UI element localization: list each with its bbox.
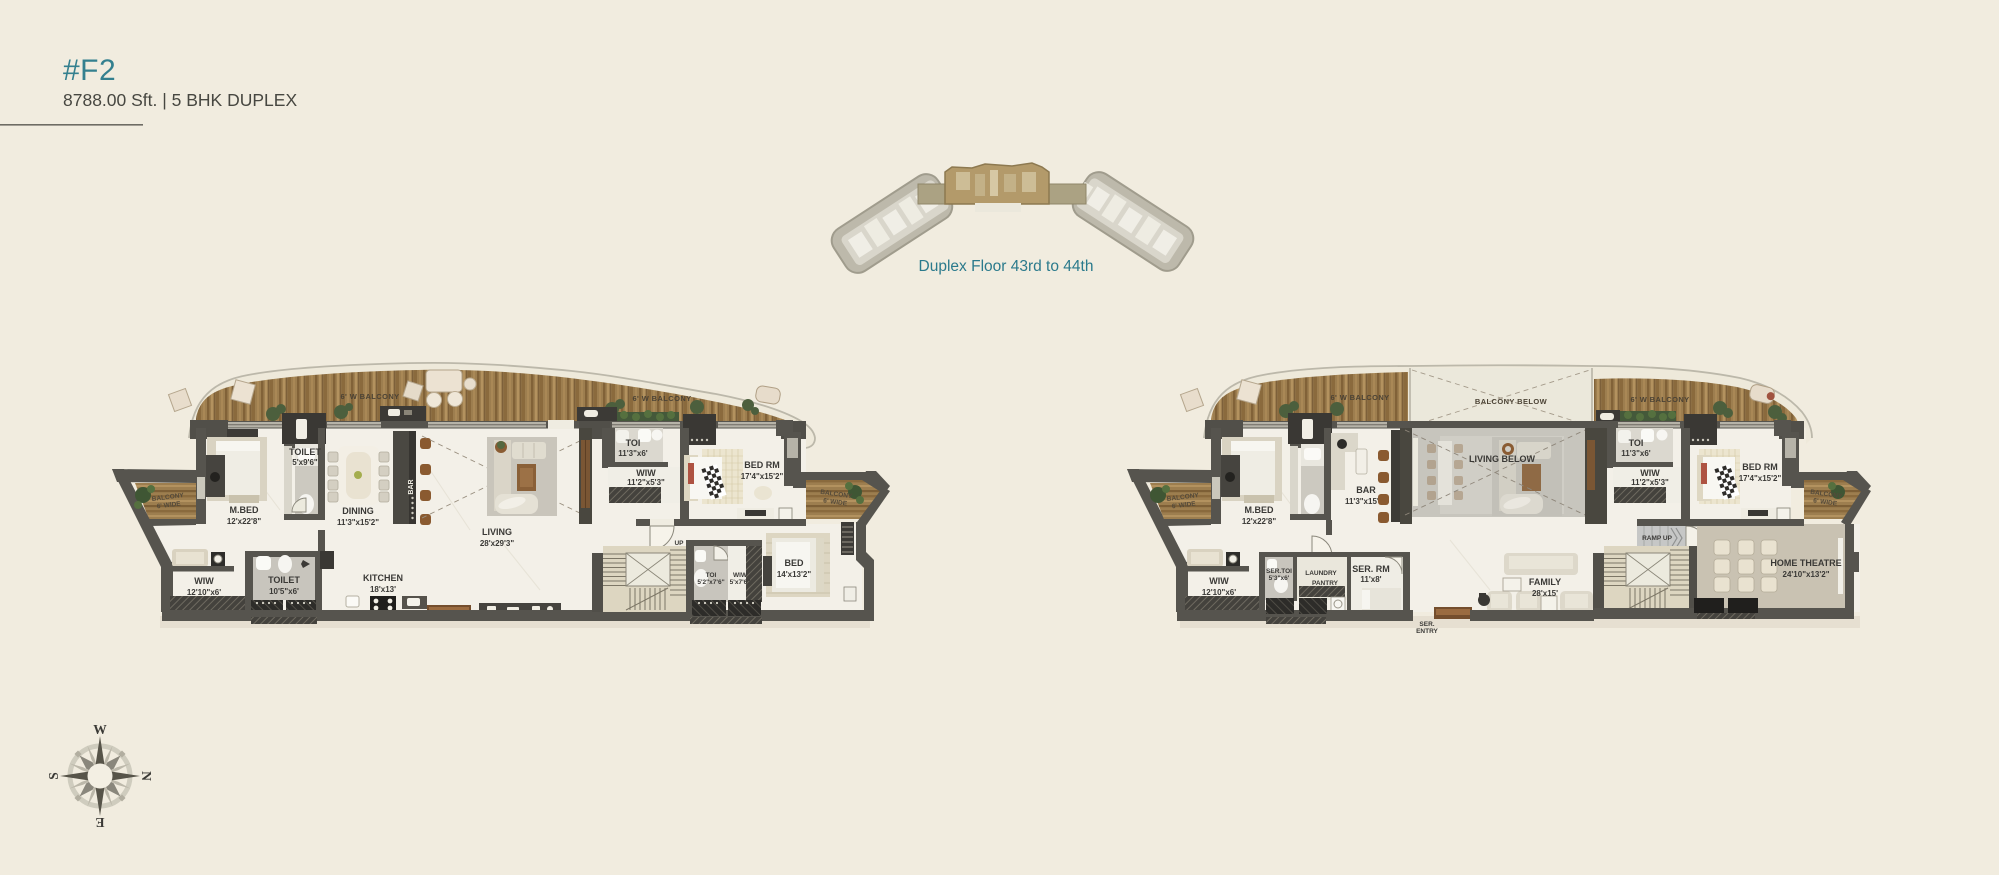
svg-text:6' W BALCONY: 6' W BALCONY	[1630, 395, 1689, 404]
svg-text:WIW: WIW	[1640, 468, 1660, 478]
svg-text:LIVING: LIVING	[482, 527, 512, 537]
svg-text:TOI: TOI	[626, 438, 641, 448]
svg-text:TOILET: TOILET	[268, 575, 300, 585]
svg-text:11'2"x5'3": 11'2"x5'3"	[627, 478, 665, 487]
svg-text:11'3"x15'2": 11'3"x15'2"	[337, 518, 379, 527]
svg-text:BED RM: BED RM	[1742, 462, 1778, 472]
svg-text:6' W BALCONY: 6' W BALCONY	[340, 392, 399, 401]
svg-text:LIVING BELOW: LIVING BELOW	[1469, 454, 1536, 464]
svg-text:WIW: WIW	[733, 572, 748, 579]
svg-text:PANTRY: PANTRY	[1312, 580, 1339, 587]
svg-text:14'x13'2": 14'x13'2"	[777, 570, 812, 579]
svg-text:TOI: TOI	[1629, 438, 1644, 448]
svg-text:TOILET: TOILET	[289, 447, 321, 457]
svg-text:11'x8': 11'x8'	[1360, 575, 1381, 584]
svg-text:17'4"x15'2": 17'4"x15'2"	[741, 472, 784, 481]
svg-text:ENTRY: ENTRY	[1416, 628, 1438, 635]
svg-text:#F2: #F2	[63, 54, 116, 87]
svg-text:6' W BALCONY: 6' W BALCONY	[1330, 393, 1389, 402]
svg-text:TOI: TOI	[706, 572, 717, 579]
svg-text:M.BED: M.BED	[230, 505, 260, 515]
svg-text:28'x29'3": 28'x29'3"	[480, 539, 515, 548]
svg-text:11'2"x5'3": 11'2"x5'3"	[1631, 478, 1669, 487]
svg-text:28'x15': 28'x15'	[1532, 589, 1558, 598]
svg-text:E: E	[95, 815, 104, 830]
svg-text:BAR: BAR	[408, 479, 415, 494]
svg-text:11'3"x6': 11'3"x6'	[1621, 449, 1651, 458]
svg-text:UP: UP	[674, 540, 684, 547]
svg-text:HOME THEATRE: HOME THEATRE	[1770, 558, 1841, 568]
svg-text:24'10"x13'2": 24'10"x13'2"	[1783, 570, 1830, 579]
svg-text:10'5"x6': 10'5"x6'	[269, 587, 299, 596]
svg-text:5'x7'6": 5'x7'6"	[730, 579, 751, 586]
svg-text:WIW: WIW	[194, 576, 214, 586]
svg-text:SER.: SER.	[1419, 621, 1434, 628]
svg-text:12'10"x6': 12'10"x6'	[187, 588, 221, 597]
svg-text:WIW: WIW	[636, 468, 656, 478]
svg-text:SER.TOI: SER.TOI	[1266, 568, 1292, 575]
svg-text:FAMILY: FAMILY	[1529, 577, 1561, 587]
svg-text:BAR: BAR	[1356, 485, 1376, 495]
svg-text:12'x22'8": 12'x22'8"	[1242, 517, 1277, 526]
svg-text:Duplex Floor 43rd to 44th: Duplex Floor 43rd to 44th	[919, 258, 1094, 275]
svg-text:BED: BED	[784, 558, 804, 568]
svg-text:6' W BALCONY: 6' W BALCONY	[632, 394, 691, 403]
svg-text:M.BED: M.BED	[1245, 505, 1275, 515]
svg-text:18'x13': 18'x13'	[370, 585, 396, 594]
svg-text:W: W	[93, 722, 107, 737]
svg-text:11'3"x6': 11'3"x6'	[618, 449, 648, 458]
svg-text:8788.00 Sft. | 5 BHK DUPLEX: 8788.00 Sft. | 5 BHK DUPLEX	[63, 90, 297, 110]
svg-text:LAUNDRY: LAUNDRY	[1305, 570, 1337, 577]
svg-text:BALCONY BELOW: BALCONY BELOW	[1475, 397, 1548, 406]
svg-text:DINING: DINING	[342, 506, 374, 516]
svg-text:WIW: WIW	[1209, 576, 1229, 586]
svg-text:5'3"x6': 5'3"x6'	[1269, 575, 1290, 582]
svg-text:RAMP UP: RAMP UP	[1642, 535, 1673, 542]
svg-text:KITCHEN: KITCHEN	[363, 573, 403, 583]
svg-text:12'10"x6': 12'10"x6'	[1202, 588, 1236, 597]
svg-text:5'x9'6": 5'x9'6"	[292, 458, 318, 467]
svg-text:BED RM: BED RM	[744, 460, 780, 470]
svg-text:5'2"x7'6": 5'2"x7'6"	[697, 579, 724, 586]
svg-text:12'x22'8": 12'x22'8"	[227, 517, 262, 526]
svg-text:17'4"x15'2": 17'4"x15'2"	[1739, 474, 1782, 483]
svg-text:N: N	[139, 771, 154, 781]
svg-text:SER. RM: SER. RM	[1352, 564, 1390, 574]
svg-text:S: S	[46, 772, 61, 780]
